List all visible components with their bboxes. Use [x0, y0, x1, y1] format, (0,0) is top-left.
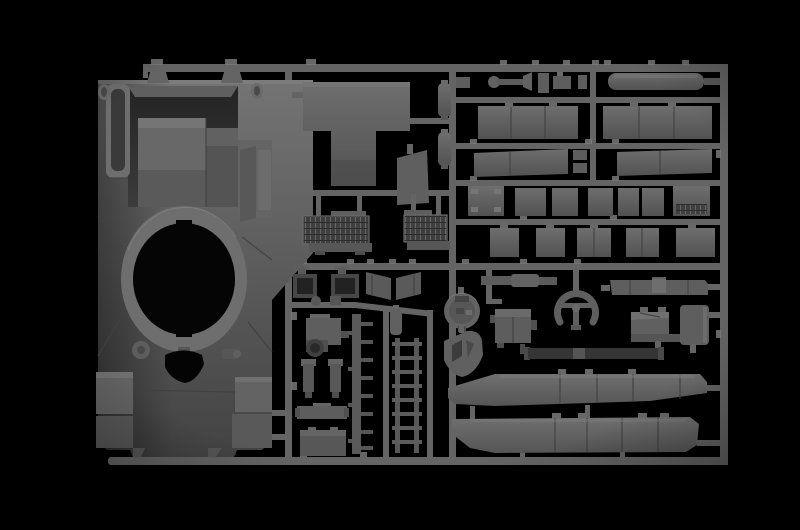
photo-stage	[0, 0, 800, 530]
sprue-photo	[0, 0, 800, 530]
vignette-overlay	[0, 0, 800, 530]
